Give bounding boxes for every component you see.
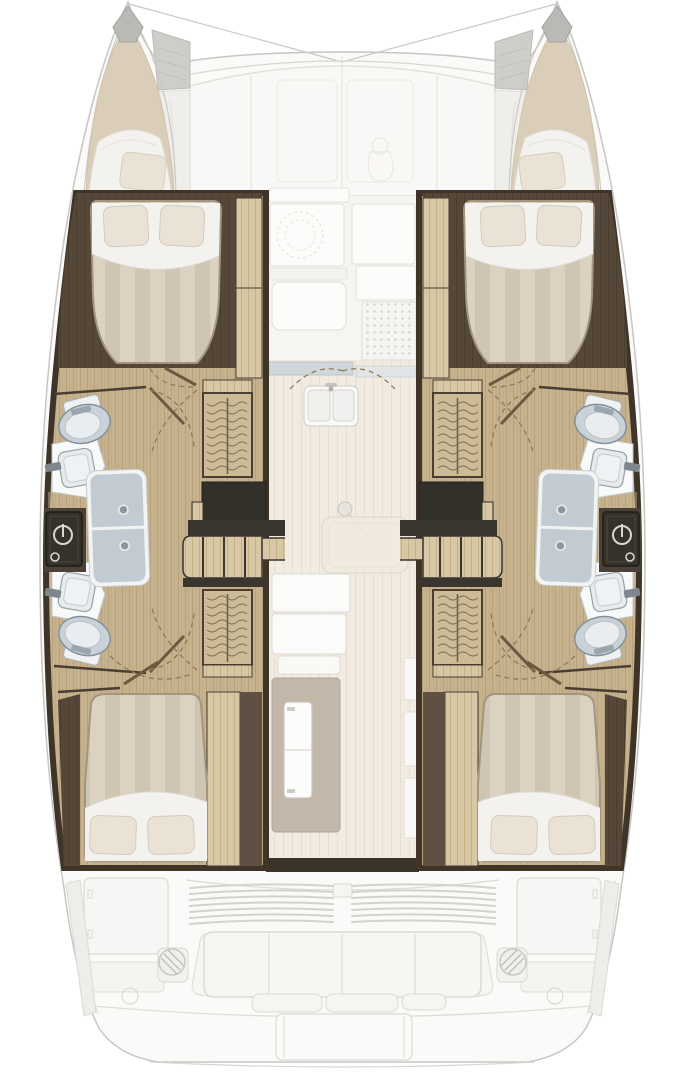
- transom-platform: [276, 1014, 412, 1060]
- shower-door-split: [92, 527, 144, 529]
- aft-dark-band: [240, 692, 262, 866]
- winch-icon: [158, 948, 188, 982]
- shower-knob: [120, 541, 129, 550]
- galley-shelf-strip: [269, 268, 347, 280]
- cockpit-side-shelf: [86, 962, 164, 992]
- floorplan-canvas: Catamaran interior layout floor plan, to…: [0, 0, 685, 1080]
- pillow: [159, 205, 205, 247]
- table-top-outline: [322, 517, 408, 573]
- anchor-locker-wedge: [152, 30, 190, 90]
- pillow: [89, 815, 136, 855]
- salon-cabinet: [278, 656, 340, 674]
- front-lounge: [190, 56, 495, 196]
- companionway-dark-block: [202, 482, 266, 521]
- salon-cabinet: [272, 574, 350, 612]
- fridge: [284, 702, 312, 798]
- companionway-landing: [262, 538, 285, 560]
- salon: [266, 188, 419, 872]
- galley-cabinet: [272, 282, 346, 330]
- shelf-lip: [203, 665, 252, 677]
- bench-seat-pad: [252, 994, 322, 1012]
- side-shelf-planks: [207, 692, 240, 866]
- salon-shelf: [404, 712, 417, 766]
- shelf-lip: [203, 380, 252, 393]
- companionway-bottom-band: [183, 578, 263, 587]
- galley-cabinet: [356, 266, 416, 300]
- bench-seat-pad: [326, 994, 398, 1012]
- galley-top-band: [269, 188, 349, 202]
- counter-edge-strip: [356, 366, 416, 377]
- electrical-panel: [44, 508, 86, 572]
- salon-cabinet: [272, 614, 346, 654]
- bench-seat-pad: [402, 994, 446, 1010]
- pillow: [103, 205, 149, 247]
- bow-cap: [113, 6, 143, 42]
- fridge-handle: [287, 707, 295, 711]
- catamaran-floorplan: Catamaran interior layout floor plan, to…: [0, 0, 685, 1080]
- salon-aft-bulkhead: [266, 858, 419, 872]
- shower-knob: [119, 505, 128, 514]
- cockpit-locker: [84, 878, 168, 954]
- shower: [86, 469, 150, 587]
- companionway-steps: [183, 536, 262, 578]
- companionway-step-notch: [192, 502, 203, 521]
- forepeak-pillow: [119, 151, 167, 192]
- cooktop-grate-icon: [362, 302, 416, 360]
- companionway-band: [188, 520, 285, 536]
- fridge-handle: [287, 789, 295, 793]
- galley-sink: [304, 383, 358, 426]
- pillow: [147, 815, 194, 855]
- salon-shelf: [404, 778, 417, 838]
- forward-cabin: [58, 193, 262, 387]
- counter-edge-strip: [269, 362, 353, 375]
- salon-shelf: [404, 658, 417, 700]
- louver-center-latch: [333, 884, 352, 897]
- galley-counter-right: [352, 204, 415, 264]
